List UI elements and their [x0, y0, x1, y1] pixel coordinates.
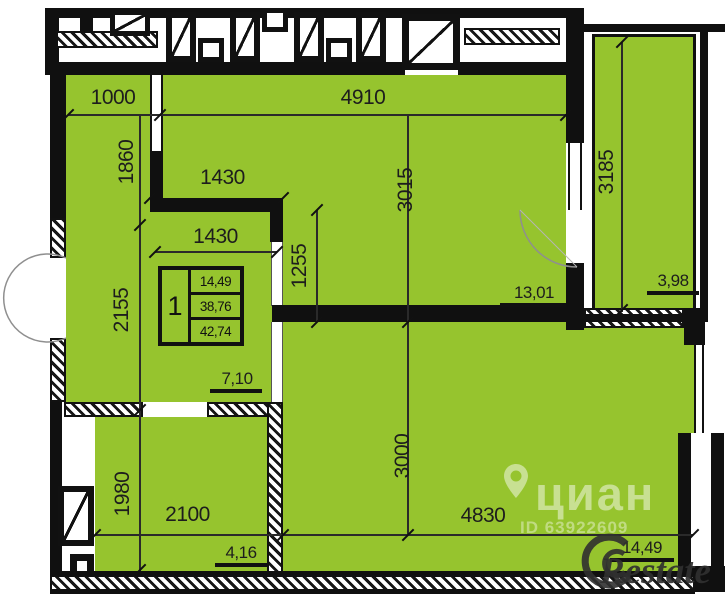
vent-block-icon — [262, 8, 288, 32]
kitchen-window-glass — [691, 433, 711, 570]
area-underline — [210, 389, 262, 393]
area-underline — [215, 563, 267, 567]
window-icon — [110, 10, 150, 36]
window-icon — [694, 345, 704, 433]
unit-living-area: 14,49 — [191, 270, 240, 292]
floor-plan: 1000 4910 1860 2155 1430 1430 3015 1255 … — [0, 0, 725, 597]
dim-niche-width-upper: 1430 — [185, 167, 260, 189]
area-hall: 7,10 — [213, 369, 261, 389]
wall-balcony-bottom — [584, 314, 708, 322]
shaft-icon — [402, 14, 460, 70]
hatched-wall — [64, 402, 143, 417]
dim-line — [621, 42, 623, 312]
dim-corridor-height: 1860 — [116, 117, 138, 207]
dim-main-room-width: 4910 — [323, 87, 403, 109]
vent-block-icon — [326, 38, 352, 62]
dim-kitchen-width: 4830 — [443, 505, 523, 527]
vent-block-icon — [198, 38, 224, 62]
window-icon — [230, 12, 260, 62]
area-main-room: 13,01 — [505, 283, 563, 303]
dim-bathroom-height: 1980 — [112, 449, 134, 539]
door-opening-bathroom — [143, 402, 207, 417]
dim-line — [155, 251, 277, 253]
dim-wall-offset: 1255 — [289, 221, 311, 311]
wall-top-inner-left — [45, 62, 405, 75]
area-balcony: 3,98 — [650, 271, 696, 291]
dim-line — [139, 114, 141, 571]
area-underline — [610, 558, 674, 562]
window-icon — [294, 12, 324, 62]
unit-info-box: 1 14,49 38,76 42,74 — [158, 266, 244, 346]
balcony-window-icon — [568, 143, 582, 210]
dim-balcony-height: 3185 — [596, 127, 618, 217]
wall-balcony-side-lower — [566, 263, 584, 330]
dim-kitchen-height: 3000 — [392, 411, 414, 501]
unit-rooms-count: 1 — [162, 270, 191, 342]
dim-line — [95, 534, 693, 536]
dim-line — [68, 114, 566, 116]
area-bathroom: 4,16 — [218, 543, 264, 563]
dim-niche-width-lower: 1430 — [178, 226, 253, 248]
area-underline — [647, 291, 699, 295]
wall-niche — [150, 198, 283, 212]
hatched-wall — [267, 402, 283, 573]
wall-top-inner-right — [458, 62, 582, 75]
window-icon — [58, 486, 94, 546]
kitchen-window-bar — [678, 433, 691, 570]
wall-left-upper — [50, 75, 66, 218]
window-icon — [166, 12, 196, 62]
hatched-wall — [50, 218, 66, 258]
dim-bathroom-width: 2100 — [150, 504, 225, 526]
area-kitchen: 14,49 — [613, 538, 671, 558]
unit-total-area: 42,74 — [191, 317, 240, 342]
wall-balcony-right — [700, 24, 708, 322]
dim-line — [316, 210, 318, 322]
hatched-wall — [464, 28, 560, 45]
door-opening-kitchen — [271, 322, 283, 403]
dim-hall-height: 2155 — [111, 265, 133, 355]
window-icon — [356, 12, 386, 62]
wall-stub — [270, 212, 283, 242]
kitchen-window-bar — [711, 433, 724, 570]
wall-partition — [150, 151, 163, 198]
hatched-wall — [50, 338, 66, 402]
unit-usable-area: 38,76 — [191, 292, 240, 317]
dim-corridor-width: 1000 — [78, 87, 148, 109]
wall-bottom-edge — [50, 589, 695, 594]
area-underline — [500, 303, 566, 307]
wall-balcony-side-upper — [566, 8, 584, 143]
dim-main-room-height: 3015 — [395, 145, 417, 235]
